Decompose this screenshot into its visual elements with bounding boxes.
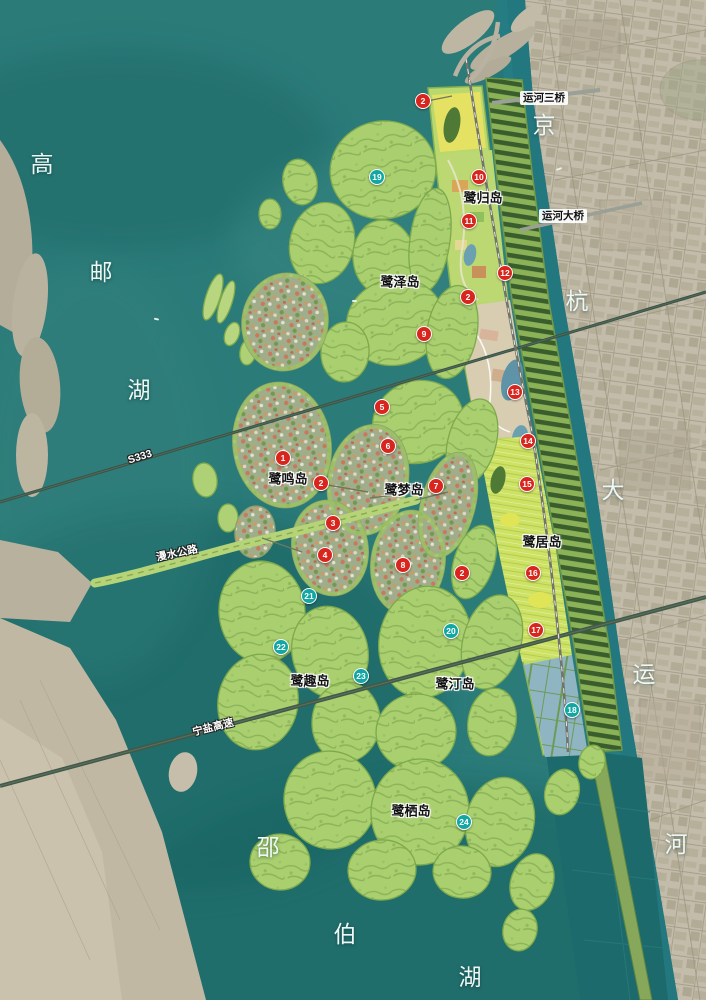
poi-marker-6[interactable]: 6 bbox=[380, 438, 396, 454]
water-name-char-shaobo-lake: 湖 bbox=[459, 958, 482, 992]
poi-marker-9[interactable]: 9 bbox=[416, 326, 432, 342]
poi-marker-14[interactable]: 14 bbox=[520, 433, 536, 449]
bridge-name-label: 运河三桥 bbox=[520, 91, 568, 105]
poi-marker-17[interactable]: 17 bbox=[528, 622, 544, 638]
water-name-char-shaobo-lake: 邵 bbox=[257, 828, 280, 862]
poi-marker-10[interactable]: 10 bbox=[471, 169, 487, 185]
island-name-label: 鹭栖岛 bbox=[391, 801, 430, 820]
poi-marker-7[interactable]: 7 bbox=[428, 478, 444, 494]
poi-marker-5[interactable]: 5 bbox=[374, 399, 390, 415]
poi-marker-13[interactable]: 13 bbox=[507, 384, 523, 400]
poi-marker-2[interactable]: 2 bbox=[460, 289, 476, 305]
poi-marker-20[interactable]: 20 bbox=[443, 623, 459, 639]
masterplan-map[interactable]: 高邮湖京杭大运河邵伯湖鹭归岛鹭泽岛鹭鸣岛鹭梦岛鹭居岛鹭趣岛鹭汀岛鹭栖岛运河三桥运… bbox=[0, 0, 706, 1000]
water-name-char-gaoyou-lake: 湖 bbox=[128, 371, 151, 405]
poi-marker-1[interactable]: 1 bbox=[275, 450, 291, 466]
water-name-char-jinghang-grand-canal: 大 bbox=[602, 471, 625, 505]
island-name-label: 鹭鸣岛 bbox=[268, 469, 307, 488]
poi-marker-3[interactable]: 3 bbox=[325, 515, 341, 531]
island-name-label: 鹭汀岛 bbox=[435, 674, 474, 693]
poi-marker-16[interactable]: 16 bbox=[525, 565, 541, 581]
annotation-layer: 高邮湖京杭大运河邵伯湖鹭归岛鹭泽岛鹭鸣岛鹭梦岛鹭居岛鹭趣岛鹭汀岛鹭栖岛运河三桥运… bbox=[0, 0, 706, 1000]
poi-marker-2[interactable]: 2 bbox=[313, 475, 329, 491]
water-name-char-gaoyou-lake: 高 bbox=[31, 145, 54, 179]
poi-marker-8[interactable]: 8 bbox=[395, 557, 411, 573]
poi-marker-2[interactable]: 2 bbox=[454, 565, 470, 581]
poi-marker-23[interactable]: 23 bbox=[353, 668, 369, 684]
water-name-char-jinghang-grand-canal: 运 bbox=[633, 655, 656, 689]
water-name-char-jinghang-grand-canal: 河 bbox=[665, 825, 688, 859]
poi-marker-11[interactable]: 11 bbox=[461, 213, 477, 229]
road-name-label: 宁盐高速 bbox=[191, 715, 235, 740]
island-name-label: 鹭居岛 bbox=[522, 532, 561, 551]
water-name-char-jinghang-grand-canal: 杭 bbox=[566, 282, 589, 316]
water-name-char-gaoyou-lake: 邮 bbox=[90, 253, 113, 287]
road-name-label: S333 bbox=[127, 448, 154, 467]
poi-marker-12[interactable]: 12 bbox=[497, 265, 513, 281]
poi-marker-24[interactable]: 24 bbox=[456, 814, 472, 830]
island-name-label: 鹭归岛 bbox=[463, 188, 502, 207]
poi-marker-19[interactable]: 19 bbox=[369, 169, 385, 185]
island-name-label: 鹭趣岛 bbox=[290, 671, 329, 690]
poi-marker-2[interactable]: 2 bbox=[415, 93, 431, 109]
water-name-char-shaobo-lake: 伯 bbox=[334, 915, 357, 949]
island-name-label: 鹭泽岛 bbox=[380, 272, 419, 291]
poi-marker-22[interactable]: 22 bbox=[273, 639, 289, 655]
water-name-char-jinghang-grand-canal: 京 bbox=[533, 106, 556, 140]
bridge-name-label: 运河大桥 bbox=[539, 209, 587, 223]
poi-marker-18[interactable]: 18 bbox=[564, 702, 580, 718]
poi-marker-21[interactable]: 21 bbox=[301, 588, 317, 604]
island-name-label: 鹭梦岛 bbox=[384, 480, 423, 499]
poi-marker-15[interactable]: 15 bbox=[519, 476, 535, 492]
poi-marker-4[interactable]: 4 bbox=[317, 547, 333, 563]
road-name-label: 漫水公路 bbox=[155, 541, 199, 564]
